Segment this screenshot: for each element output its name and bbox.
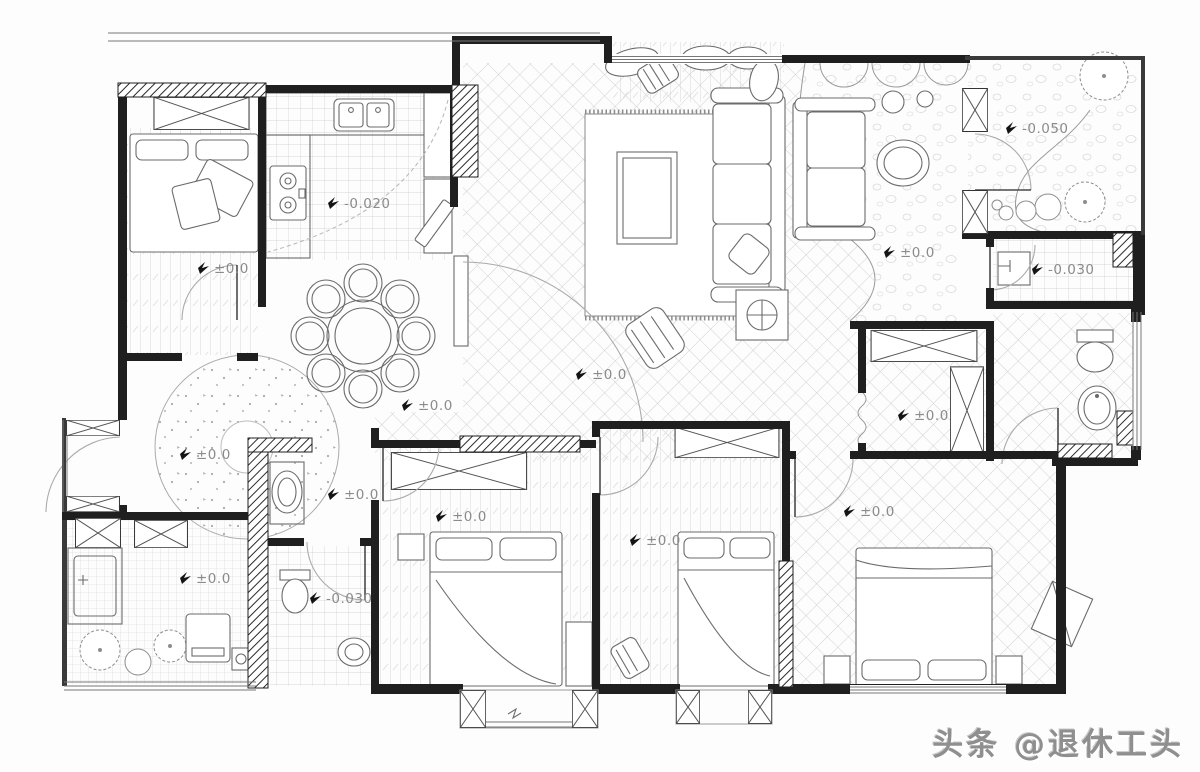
svg-text:-0.030: -0.030 xyxy=(326,591,373,607)
toilet xyxy=(1077,342,1113,372)
nightstand xyxy=(996,656,1022,684)
svg-text:±0.0: ±0.0 xyxy=(452,509,487,525)
nightstand xyxy=(398,534,424,560)
nightstand xyxy=(824,656,850,684)
closet-cabinet-side xyxy=(950,367,983,454)
svg-text:±0.0: ±0.0 xyxy=(196,447,231,463)
wardrobe xyxy=(391,452,526,489)
dresser xyxy=(566,622,592,686)
svg-text:-0.050: -0.050 xyxy=(1022,121,1069,137)
sofa xyxy=(711,88,785,302)
svg-text:-0.030: -0.030 xyxy=(1048,262,1095,278)
shower-basin xyxy=(338,638,370,666)
powder-sink xyxy=(272,471,302,513)
washing-machine xyxy=(186,614,230,662)
svg-text:±0.0: ±0.0 xyxy=(592,367,627,383)
svg-text:±0.0: ±0.0 xyxy=(344,487,379,503)
svg-text:±0.0: ±0.0 xyxy=(860,504,895,520)
floor-plan-drawing: ±0.0 -0.020 ±0.0 ±0.0 ±0.0 -0.050 -0.030… xyxy=(0,0,1200,772)
laundry-right-fixtures xyxy=(998,252,1030,285)
tv-console xyxy=(454,256,468,346)
elevation-label-foyer-lower: ±0.0 xyxy=(328,487,379,503)
svg-text:±0.0: ±0.0 xyxy=(418,398,453,414)
svg-text:±0.0: ±0.0 xyxy=(914,408,949,424)
floor-plan-page: ±0.0 -0.020 ±0.0 ±0.0 ±0.0 -0.050 -0.030… xyxy=(0,0,1200,772)
svg-text:±0.0: ±0.0 xyxy=(646,533,681,549)
pier xyxy=(962,88,987,131)
side-table xyxy=(736,290,788,340)
closet-cabinet-top xyxy=(871,330,977,361)
svg-text:±0.0: ±0.0 xyxy=(214,261,249,277)
svg-text:±0.0: ±0.0 xyxy=(196,571,231,587)
dining-chairs xyxy=(291,264,435,408)
svg-text:±0.0: ±0.0 xyxy=(900,245,935,261)
wardrobe xyxy=(154,97,249,129)
kitchen-sink xyxy=(334,99,394,131)
bedroom-top-left-furniture xyxy=(130,97,258,252)
svg-text:-0.020: -0.020 xyxy=(344,196,391,212)
bay-window-bedroom-2 xyxy=(676,690,772,724)
toilet xyxy=(282,579,308,613)
elevation-label-dining: ±0.0 xyxy=(402,398,453,414)
wardrobe xyxy=(675,427,779,457)
toilet-tank xyxy=(1077,330,1113,342)
watermark-text: 头条 @退休工头 xyxy=(932,719,1184,764)
stove xyxy=(270,166,306,220)
pier xyxy=(962,190,987,233)
coffee-table xyxy=(617,152,677,244)
bay-window-bedroom-1 xyxy=(460,690,598,728)
dining-table-set xyxy=(291,264,435,408)
tall-cabinet xyxy=(424,93,452,177)
